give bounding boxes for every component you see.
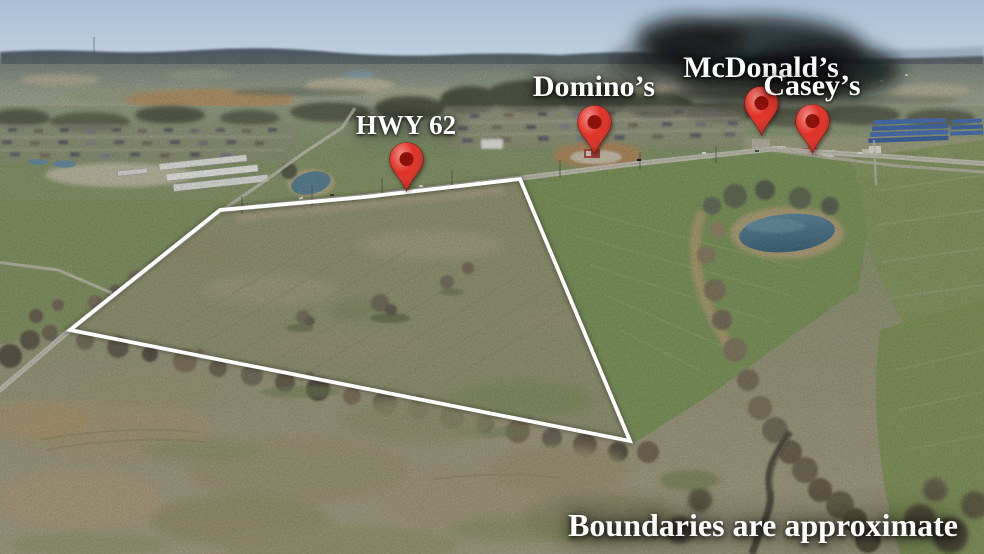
map-pin-hwy-62: HWY 62 (388, 141, 425, 193)
location-pin-icon (794, 103, 831, 155)
pin-label-caseys: Casey’s (763, 71, 860, 101)
grain-overlay (0, 58, 984, 554)
aerial-property-photo: HWY 62 Domino’s McDonald’s Casey’s (0, 0, 984, 554)
map-pin-dominos: Domino’s (576, 104, 613, 156)
boundary-disclaimer: Boundaries are approximate (568, 509, 958, 541)
location-pin-icon (388, 141, 425, 193)
map-pin-caseys: Casey’s (794, 103, 831, 155)
pin-label-hwy-62: HWY 62 (356, 112, 456, 139)
location-pin-icon (576, 104, 613, 156)
pin-label-dominos: Domino’s (533, 72, 655, 102)
